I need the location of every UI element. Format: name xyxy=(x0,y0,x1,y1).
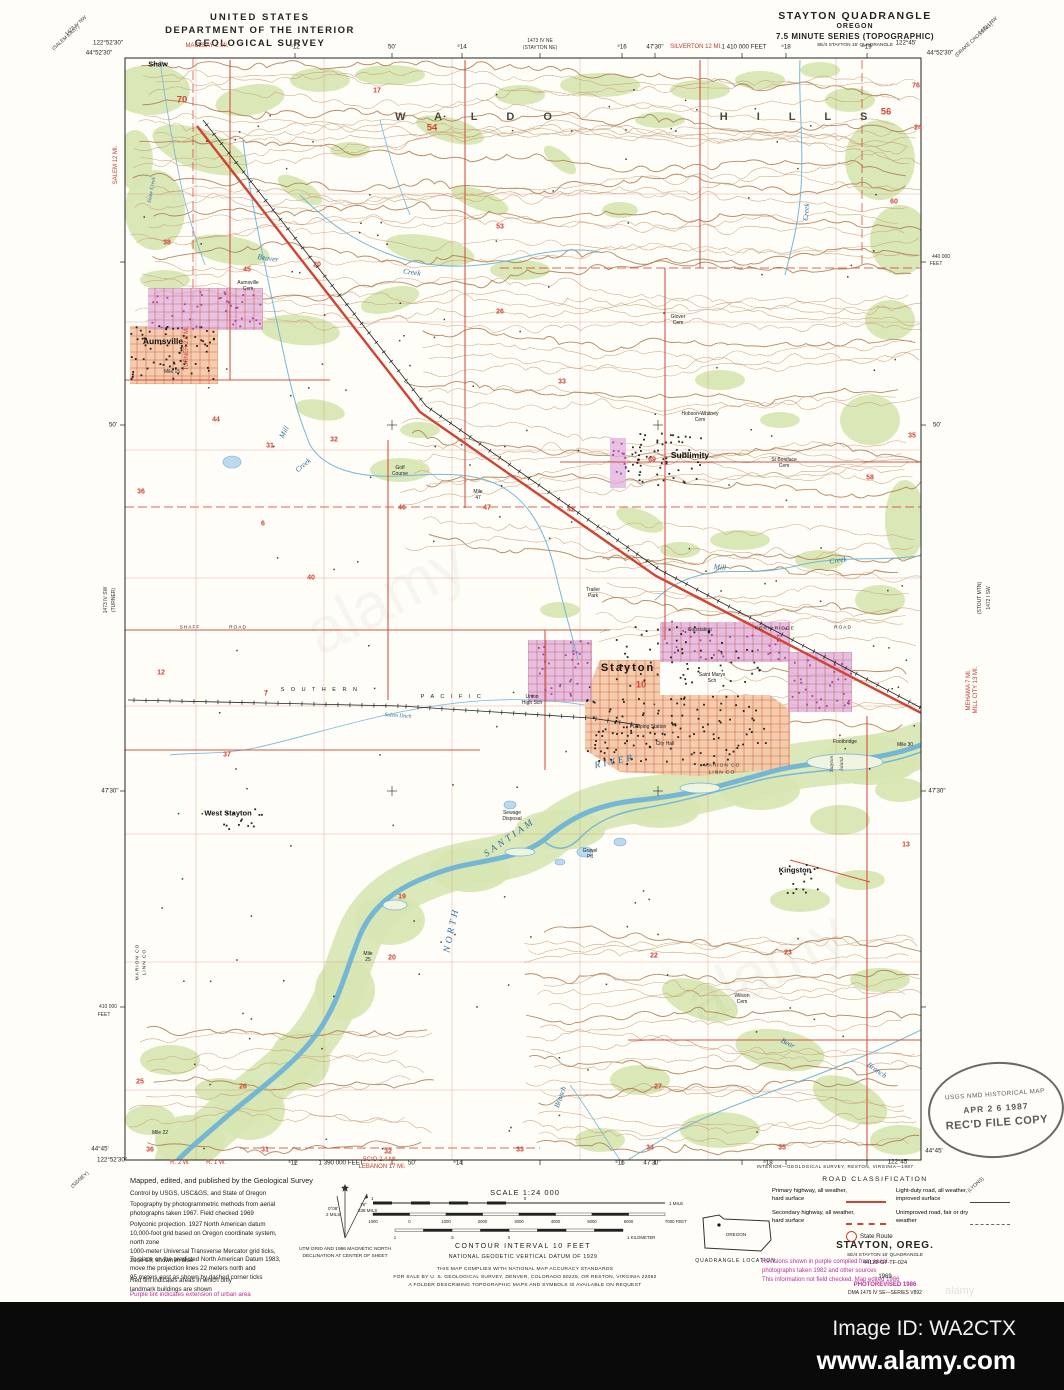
building xyxy=(777,635,779,637)
building xyxy=(713,762,715,764)
building xyxy=(638,698,640,700)
building xyxy=(132,374,134,376)
building xyxy=(676,640,678,642)
creek xyxy=(785,60,802,275)
map-interior xyxy=(110,58,931,1165)
building xyxy=(177,327,179,329)
vegetation-patch xyxy=(660,542,700,558)
building xyxy=(646,456,648,458)
building xyxy=(185,345,187,347)
vegetation-patch xyxy=(400,422,440,438)
building xyxy=(615,749,617,751)
building xyxy=(691,468,693,470)
building xyxy=(690,636,692,638)
building xyxy=(736,747,738,749)
building xyxy=(577,683,579,685)
building xyxy=(626,740,628,742)
building xyxy=(665,442,667,444)
building xyxy=(681,441,683,443)
building xyxy=(850,673,852,675)
building xyxy=(183,981,185,983)
railroad-tick xyxy=(656,566,659,570)
building xyxy=(806,864,808,866)
building xyxy=(843,1036,845,1038)
building xyxy=(895,359,897,361)
building xyxy=(873,250,875,252)
building xyxy=(235,768,237,770)
building xyxy=(593,717,595,719)
building xyxy=(444,116,446,118)
building xyxy=(572,650,574,652)
building xyxy=(370,477,372,479)
building xyxy=(604,752,606,754)
building xyxy=(496,726,498,728)
building xyxy=(694,763,696,765)
road-classification-title: ROAD CLASSIFICATION xyxy=(800,1176,950,1183)
building xyxy=(189,319,191,321)
quadrangle-header: STAYTON QUADRANGLE OREGON 7.5 MINUTE SER… xyxy=(730,10,980,48)
building xyxy=(167,326,169,328)
feet-bar-seg xyxy=(446,1213,483,1216)
building xyxy=(789,865,791,867)
building xyxy=(684,697,686,699)
building xyxy=(662,458,664,460)
building xyxy=(643,439,645,441)
building xyxy=(623,726,625,728)
building xyxy=(548,663,550,665)
quad-state: OREGON xyxy=(730,23,980,30)
building xyxy=(172,315,174,317)
building xyxy=(606,984,608,986)
agency-header: UNITED STATES DEPARTMENT OF THE INTERIOR… xyxy=(130,12,390,49)
building xyxy=(444,319,446,321)
building xyxy=(666,457,668,459)
vegetation-patch xyxy=(370,458,430,482)
building xyxy=(142,334,144,336)
building xyxy=(683,704,685,706)
building xyxy=(616,471,618,473)
vegetation-patch xyxy=(695,370,745,390)
building xyxy=(238,824,240,826)
building xyxy=(172,368,174,370)
building xyxy=(843,693,845,695)
building xyxy=(213,338,215,340)
building xyxy=(691,682,693,684)
building xyxy=(191,373,193,375)
contour-lines-fern-ridge xyxy=(602,598,898,616)
building xyxy=(259,814,261,816)
building xyxy=(693,733,695,735)
building xyxy=(814,1019,816,1021)
building xyxy=(207,367,209,369)
building xyxy=(731,662,733,664)
building xyxy=(851,265,853,267)
building xyxy=(620,473,622,475)
building xyxy=(609,106,611,108)
note-mapped-by: Mapped, edited, and published by the Geo… xyxy=(130,1176,313,1185)
building xyxy=(700,752,702,754)
building xyxy=(729,719,731,721)
note-purple-tint: Purple tint indicates extension of urban… xyxy=(130,1291,251,1300)
building xyxy=(544,689,546,691)
vegetation-patch xyxy=(800,62,840,78)
contour-lines-southeast xyxy=(528,935,913,954)
building xyxy=(751,731,753,733)
railroad-tick xyxy=(498,456,501,460)
building xyxy=(516,787,518,789)
building xyxy=(551,687,553,689)
building xyxy=(469,464,471,466)
building xyxy=(604,758,606,760)
building xyxy=(623,701,625,703)
building xyxy=(180,360,182,362)
railroad-tick xyxy=(557,497,560,501)
building xyxy=(569,681,571,683)
building xyxy=(194,336,196,338)
building xyxy=(713,755,715,757)
building xyxy=(705,570,707,572)
building xyxy=(208,387,210,389)
contour-lines-waldo-hills xyxy=(141,125,917,167)
building xyxy=(200,339,202,341)
building xyxy=(512,130,514,132)
building xyxy=(663,480,665,482)
building xyxy=(719,720,721,722)
building xyxy=(662,444,664,446)
building xyxy=(721,653,723,655)
declination-caption: UTM GRID AND 1986 MAGNETIC NORTH DECLINA… xyxy=(275,1246,415,1260)
building xyxy=(209,342,211,344)
building xyxy=(643,890,645,892)
building xyxy=(605,728,607,730)
quadrangle-dot xyxy=(717,1223,720,1226)
building xyxy=(659,467,661,469)
km-bar-seg xyxy=(481,1229,510,1232)
railroad-tick xyxy=(636,552,639,556)
building xyxy=(131,356,133,358)
building xyxy=(600,751,602,753)
building xyxy=(255,319,257,321)
building xyxy=(571,130,573,132)
building xyxy=(802,889,804,891)
building xyxy=(140,330,142,332)
building xyxy=(632,446,634,448)
building xyxy=(182,878,184,880)
building xyxy=(135,358,137,360)
building xyxy=(180,347,182,349)
building xyxy=(669,629,671,631)
building xyxy=(496,94,498,96)
building xyxy=(620,664,622,666)
building xyxy=(607,747,609,749)
pond xyxy=(223,456,241,468)
aumsville-urban-extension xyxy=(148,288,263,330)
contour-lines-east xyxy=(423,343,920,365)
building xyxy=(147,368,149,370)
building xyxy=(609,711,611,713)
river-island xyxy=(383,900,407,910)
building xyxy=(575,667,577,669)
building xyxy=(831,681,833,683)
building xyxy=(833,671,835,673)
building xyxy=(685,436,687,438)
building xyxy=(625,129,627,131)
building xyxy=(642,735,644,737)
vegetation-patch xyxy=(575,1128,625,1152)
building xyxy=(235,320,237,322)
building xyxy=(613,450,615,452)
vegetation-patch xyxy=(680,1112,760,1148)
note-control: Control by USGS, USC&GS, and State of Or… xyxy=(130,1190,266,1199)
feet-bar-seg xyxy=(373,1213,410,1216)
building xyxy=(644,434,646,436)
building xyxy=(786,500,788,502)
feet-bar-seg xyxy=(629,1213,666,1216)
scale-label: SCALE 1:24 000 xyxy=(445,1188,605,1197)
building xyxy=(239,325,241,327)
building xyxy=(713,738,715,740)
building xyxy=(680,728,682,730)
building xyxy=(548,286,550,288)
map-sheet: UNITED STATES DEPARTMENT OF THE INTERIOR… xyxy=(0,0,1064,1302)
building xyxy=(440,941,442,943)
building xyxy=(652,727,654,729)
compliance-note: THIS MAP COMPLIES WITH NATIONAL MAP ACCU… xyxy=(305,1266,745,1290)
building xyxy=(283,980,285,982)
building xyxy=(643,712,645,714)
building xyxy=(580,641,582,643)
building xyxy=(532,695,534,697)
building xyxy=(635,452,637,454)
building xyxy=(386,244,388,246)
km-bar-seg xyxy=(538,1229,567,1232)
roadclass-unimproved: Unimproved road, fair or dry weather xyxy=(896,1210,1014,1226)
building xyxy=(604,759,606,761)
building xyxy=(249,321,251,323)
building xyxy=(638,454,640,456)
building xyxy=(720,709,722,711)
building xyxy=(682,630,684,632)
building xyxy=(720,722,722,724)
building xyxy=(163,364,165,366)
building xyxy=(379,754,381,756)
building xyxy=(476,1006,478,1008)
building xyxy=(626,763,628,765)
building xyxy=(812,695,814,697)
vegetation-patch xyxy=(290,68,350,92)
pond xyxy=(577,847,593,857)
building xyxy=(225,310,227,312)
building xyxy=(196,345,198,347)
building xyxy=(504,446,506,448)
building xyxy=(345,389,347,391)
building xyxy=(333,996,335,998)
feet-tick-label: 7000 FEET xyxy=(665,1219,687,1224)
building xyxy=(800,679,802,681)
building xyxy=(156,301,158,303)
contour-lines-waldo-hills xyxy=(130,211,897,241)
railroad-tick xyxy=(597,525,600,529)
building xyxy=(685,683,687,685)
building xyxy=(800,682,802,684)
building xyxy=(233,813,235,815)
building xyxy=(622,716,624,718)
building xyxy=(718,737,720,739)
building xyxy=(670,442,672,444)
feet-tick-label: 2000 xyxy=(478,1219,488,1224)
building xyxy=(738,745,740,747)
building xyxy=(144,337,146,339)
building xyxy=(213,331,215,333)
building xyxy=(723,685,725,687)
building xyxy=(768,653,770,655)
building xyxy=(630,732,632,734)
building xyxy=(570,695,572,697)
stamp-date: APR 2 6 1987 xyxy=(963,1101,1029,1116)
building xyxy=(685,641,687,643)
building xyxy=(670,698,672,700)
building xyxy=(639,479,641,481)
vertical-datum: NATIONAL GEODETIC VERTICAL DATUM OF 1929 xyxy=(423,1254,623,1260)
building xyxy=(399,340,401,342)
building xyxy=(819,707,821,709)
building xyxy=(756,1131,758,1133)
building xyxy=(614,722,616,724)
building xyxy=(649,732,651,734)
building xyxy=(771,435,773,437)
building xyxy=(643,703,645,705)
railroad-tick xyxy=(587,518,590,522)
oregon-outline-map: OREGON xyxy=(693,1210,778,1255)
building xyxy=(834,664,836,666)
building xyxy=(543,646,545,648)
building xyxy=(621,665,623,667)
building xyxy=(869,768,871,770)
building xyxy=(622,699,624,701)
building xyxy=(759,670,761,672)
building xyxy=(728,484,730,486)
building xyxy=(570,679,572,681)
building xyxy=(627,735,629,737)
building xyxy=(792,883,794,885)
building xyxy=(817,889,819,891)
building xyxy=(141,374,143,376)
building xyxy=(177,373,179,375)
building xyxy=(359,232,361,234)
building xyxy=(751,429,753,431)
vegetation-patch xyxy=(490,260,550,280)
building xyxy=(530,936,532,938)
building xyxy=(136,326,138,328)
building xyxy=(676,646,678,648)
building xyxy=(326,1139,328,1141)
km-bar-seg xyxy=(595,1229,624,1232)
stayton-urban-area xyxy=(585,660,790,776)
building xyxy=(593,701,595,703)
building xyxy=(657,629,659,631)
railroad-tick xyxy=(439,415,442,419)
building xyxy=(219,712,221,714)
km-bar-seg xyxy=(424,1229,453,1232)
building xyxy=(733,751,735,753)
building xyxy=(663,312,665,314)
agency-line2: DEPARTMENT OF THE INTERIOR xyxy=(130,25,390,36)
building xyxy=(178,813,180,815)
building xyxy=(775,643,777,645)
building xyxy=(816,657,818,659)
building xyxy=(656,474,658,476)
contour-lines-waldo-hills xyxy=(134,121,916,151)
building xyxy=(236,959,238,961)
building xyxy=(676,703,678,705)
railroad-tick xyxy=(469,435,472,439)
building xyxy=(321,1048,323,1050)
building xyxy=(657,934,659,936)
building xyxy=(654,450,656,452)
topo-map-canvas xyxy=(0,0,1064,1302)
building xyxy=(711,657,713,659)
building xyxy=(699,464,701,466)
feet-tick-label: 0 xyxy=(408,1219,411,1224)
building xyxy=(598,731,600,733)
building xyxy=(797,938,799,940)
building xyxy=(174,363,176,365)
building xyxy=(672,434,674,436)
building xyxy=(793,892,795,894)
building xyxy=(686,663,688,665)
building xyxy=(639,474,641,476)
building xyxy=(670,128,672,129)
building xyxy=(898,687,900,689)
building xyxy=(587,750,589,752)
building xyxy=(615,720,617,722)
building xyxy=(277,557,279,559)
building xyxy=(179,352,181,354)
sublimity-urban-extension xyxy=(610,438,626,488)
sheet-dma-ref: DMA 1475 IV SE—SERIES V892 xyxy=(800,1290,970,1296)
building xyxy=(624,653,626,655)
sheet-code: 44122-G7-TF-024 xyxy=(800,1260,970,1266)
building xyxy=(252,317,254,319)
building xyxy=(249,1038,251,1040)
building xyxy=(764,583,766,585)
building xyxy=(798,692,800,694)
vegetation-patch xyxy=(110,65,190,115)
building xyxy=(757,649,759,651)
building xyxy=(694,626,696,628)
building xyxy=(197,306,199,308)
building xyxy=(648,899,650,901)
building xyxy=(680,633,682,635)
feet-tick-label: 6000 xyxy=(624,1219,634,1224)
building xyxy=(626,726,628,728)
building xyxy=(150,348,152,350)
building xyxy=(637,735,639,737)
building xyxy=(166,359,168,361)
building xyxy=(559,685,561,687)
vegetation-patch xyxy=(825,88,875,112)
building xyxy=(837,679,839,681)
building xyxy=(787,892,789,894)
building xyxy=(261,814,263,816)
building xyxy=(720,665,722,667)
building xyxy=(526,430,528,432)
building xyxy=(184,303,186,305)
building xyxy=(308,387,310,389)
building xyxy=(839,735,841,737)
railroad-southern-pacific xyxy=(128,700,640,725)
contour-lines-waldo-hills xyxy=(150,168,924,205)
